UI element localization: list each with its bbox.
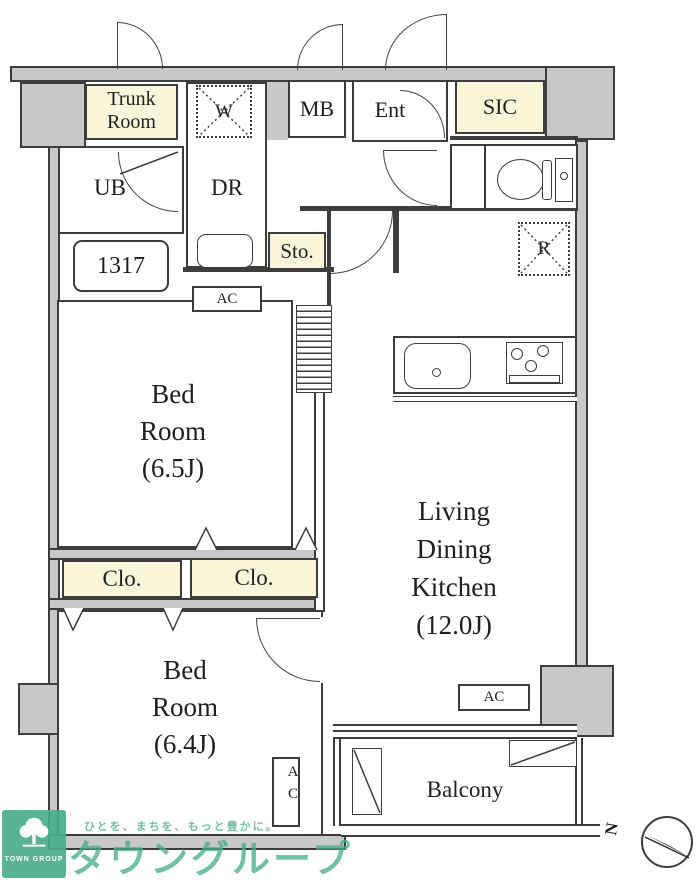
bedroom-64-label: Bed Room (6.4J)	[75, 652, 295, 763]
stove-grill	[509, 375, 560, 383]
kitchen-counter-lip	[393, 396, 577, 402]
toilet-seat-hinge	[542, 160, 552, 200]
balcony-divider-left	[352, 748, 382, 815]
trunk-room-label-line2: Room	[85, 111, 178, 134]
toilet-room-divider	[484, 146, 486, 208]
ldk-label-line3: Kitchen	[357, 568, 551, 606]
wall-kitchen-stub	[393, 209, 399, 273]
wall-hatch-strip	[296, 305, 332, 393]
unit-number-label: 1317	[73, 240, 169, 292]
stove-burner-3	[525, 360, 537, 372]
door-arc-trunk	[117, 22, 163, 69]
sink-drain	[432, 368, 441, 377]
washbasin	[197, 234, 253, 268]
storage-label: Sto.	[268, 232, 326, 270]
door-arc-hall	[383, 150, 437, 206]
bedroom-64-label-line3: (6.4J)	[75, 726, 295, 763]
wall-closet-bottom-band	[48, 598, 320, 610]
entrance-label: Ent	[350, 96, 430, 124]
ldk-label: Living Dining Kitchen (12.0J)	[357, 492, 551, 644]
bath-label: UB	[75, 174, 145, 202]
kitchen-sink	[404, 343, 471, 389]
stove-burner-1	[511, 348, 523, 360]
watermark-logo-caption: TOWN GROUP	[5, 856, 64, 863]
door-arc-mb	[297, 24, 343, 70]
bedroom-65-label-line2: Room	[68, 413, 278, 450]
wall-right	[575, 140, 588, 667]
balcony-divider-right	[509, 740, 577, 767]
balcony-label: Balcony	[400, 776, 530, 804]
ldk-balcony-window	[333, 724, 577, 739]
ac-bedroom-64-label: AC	[272, 764, 300, 808]
door-arc-entrance-outer	[385, 14, 447, 70]
compass-north-label: N	[601, 818, 622, 841]
trunk-room-label: Trunk Room	[85, 88, 178, 134]
washer-label: W	[196, 85, 252, 138]
refrigerator-label: R	[518, 222, 570, 276]
ldk-label-line1: Living	[357, 492, 551, 530]
window-sash-line	[333, 730, 577, 732]
ldk-label-line2: Dining	[357, 530, 551, 568]
toilet-bowl	[497, 159, 544, 200]
balcony-railing	[341, 824, 600, 837]
bedroom-65-label-line3: (6.5J)	[68, 450, 278, 487]
wall-top-left-block	[20, 82, 86, 148]
shoe-closet-label: SIC	[455, 80, 545, 134]
floor-plan: Trunk Room W MB Ent SIC UB DR 1317 Sto. …	[0, 0, 700, 881]
stove-burner-2	[537, 345, 549, 357]
watermark-logo: TOWN GROUP	[2, 810, 66, 878]
compass-icon	[641, 816, 693, 868]
balcony-edge-left	[333, 738, 341, 826]
door-arc-ldk	[330, 211, 393, 274]
toilet-tank	[555, 158, 573, 202]
bedroom-65-label-line1: Bed	[68, 376, 278, 413]
watermark-brand: タウングループ	[68, 828, 353, 881]
ac-bedroom-65-label: AC	[192, 286, 262, 312]
ac-ldk-label: AC	[458, 684, 530, 711]
dressing-room-label: DR	[196, 174, 258, 202]
tree-icon	[14, 814, 54, 854]
bedroom-65-label: Bed Room (6.5J)	[68, 376, 278, 487]
bedroom-64-label-line1: Bed	[75, 652, 295, 689]
closet-left-label: Clo.	[62, 560, 182, 598]
trunk-room-label-line1: Trunk	[85, 88, 178, 111]
closet-right-label: Clo.	[190, 558, 318, 598]
wall-top-right-block	[545, 66, 615, 140]
ldk-label-line4: (12.0J)	[357, 606, 551, 644]
bedroom-64-label-line2: Room	[75, 689, 295, 726]
wall-dr-mb-filler	[267, 82, 288, 140]
mail-box-label: MB	[288, 80, 346, 138]
wall-under-sic	[450, 136, 578, 140]
toilet-flush-button	[560, 172, 568, 180]
